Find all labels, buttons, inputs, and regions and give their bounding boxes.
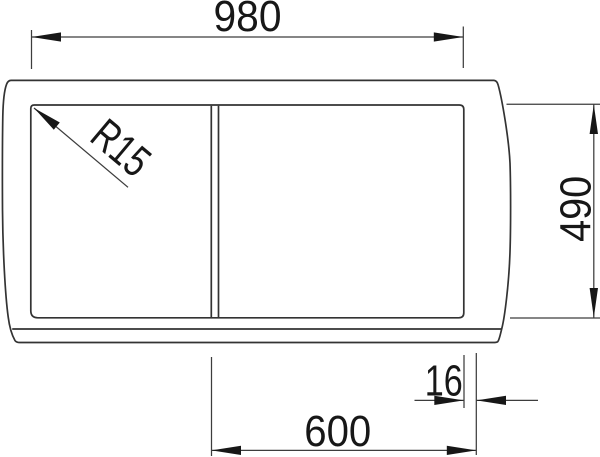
svg-text:600: 600 bbox=[304, 407, 371, 456]
svg-text:16: 16 bbox=[425, 357, 463, 406]
svg-text:490: 490 bbox=[552, 176, 600, 242]
svg-text:980: 980 bbox=[214, 0, 282, 41]
svg-text:R15: R15 bbox=[82, 110, 160, 187]
